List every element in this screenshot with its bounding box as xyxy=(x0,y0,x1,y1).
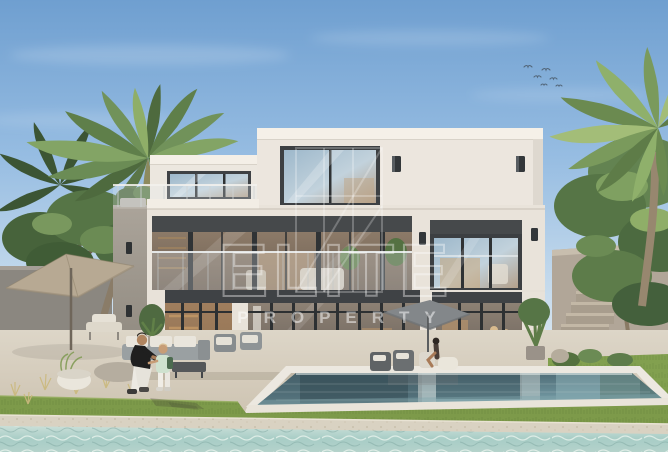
watermark-subtitle: PROPERTY xyxy=(237,308,451,327)
property-render-image: ELITE PROPERTY xyxy=(0,0,668,452)
watermark-title: ELITE xyxy=(219,229,454,312)
pool-coping xyxy=(286,366,638,373)
